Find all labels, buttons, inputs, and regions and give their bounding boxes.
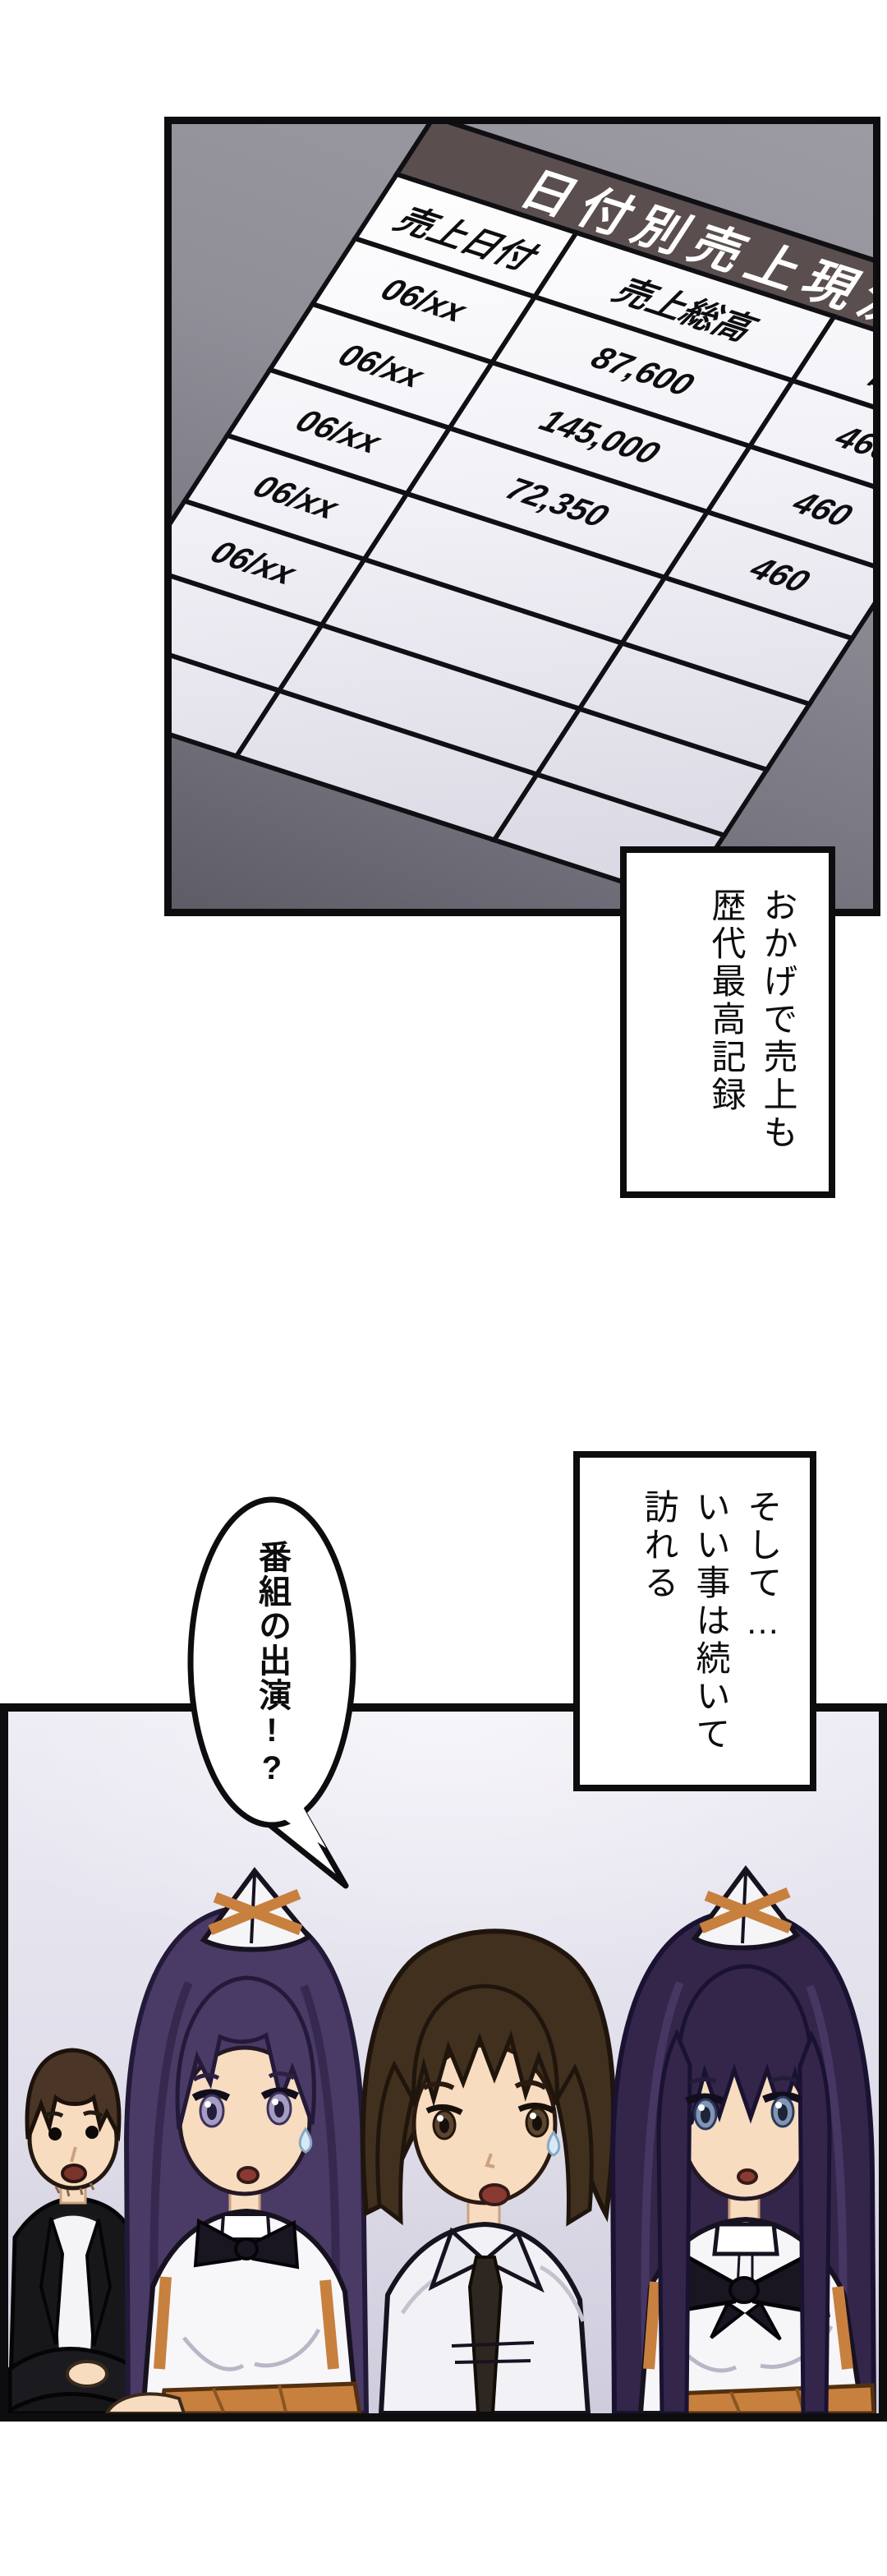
character-girl-dark — [613, 1869, 874, 2413]
girl-dark-highlight-right — [775, 2102, 782, 2108]
narration-line: おかげで売上も — [752, 887, 804, 1157]
narration-box-good-things: そして… いい事は続いて 訪れる — [573, 1451, 816, 1791]
narration-box-record-sales: おかげで売上も 歴代最高記録 — [620, 846, 835, 1198]
sales-report-paper: 日付別売上現況 売上日付 売上総高 割引 06/xx87,60046006/xx… — [164, 117, 880, 902]
girl-dark-collar — [715, 2224, 777, 2254]
boy-highlight-right — [530, 2113, 536, 2119]
characters-scene — [8, 1712, 879, 2413]
narration-line: 訪れる — [633, 1489, 685, 1753]
girl-purple-highlight-right — [272, 2099, 278, 2105]
girl-dark-highlight-left — [698, 2104, 705, 2111]
man-eye-right — [85, 2126, 99, 2139]
girl-purple-mouth — [238, 2168, 258, 2182]
narration-line: いい事は続いて — [685, 1489, 737, 1753]
character-girl-purple — [107, 1871, 366, 2413]
girl-purple-highlight-left — [205, 2101, 211, 2108]
bubble-text: 番組の出演!? — [198, 1518, 346, 1810]
narration-line: 歴代最高記録 — [701, 887, 752, 1157]
characters-panel — [0, 1703, 887, 2422]
character-bystander-man — [10, 2050, 136, 2413]
speech-bubble-tv-appearance: 番組の出演!? — [185, 1493, 374, 1904]
girl-dark-bow-knot — [730, 2278, 758, 2302]
girl-purple-apron — [161, 2384, 360, 2413]
boy-highlight-left — [437, 2115, 443, 2122]
narration-line: そして… — [737, 1489, 788, 1753]
sales-report-panel: 日付別売上現況 売上日付 売上総高 割引 06/xx87,60046006/xx… — [164, 117, 880, 916]
man-hand — [67, 2362, 107, 2386]
man-eye-left — [48, 2127, 62, 2141]
girl-purple-strap-right — [325, 2280, 333, 2369]
manga-page: { "report": { "title": "日付別売上現況", "colum… — [0, 0, 887, 2576]
man-mouth — [62, 2165, 85, 2182]
girl-dark-mouth — [738, 2170, 756, 2183]
boy-mouth — [480, 2185, 508, 2205]
character-boy-brown — [363, 1931, 614, 2413]
girl-purple-bow-knot — [236, 2239, 257, 2259]
girl-purple-strap-left — [159, 2277, 166, 2369]
